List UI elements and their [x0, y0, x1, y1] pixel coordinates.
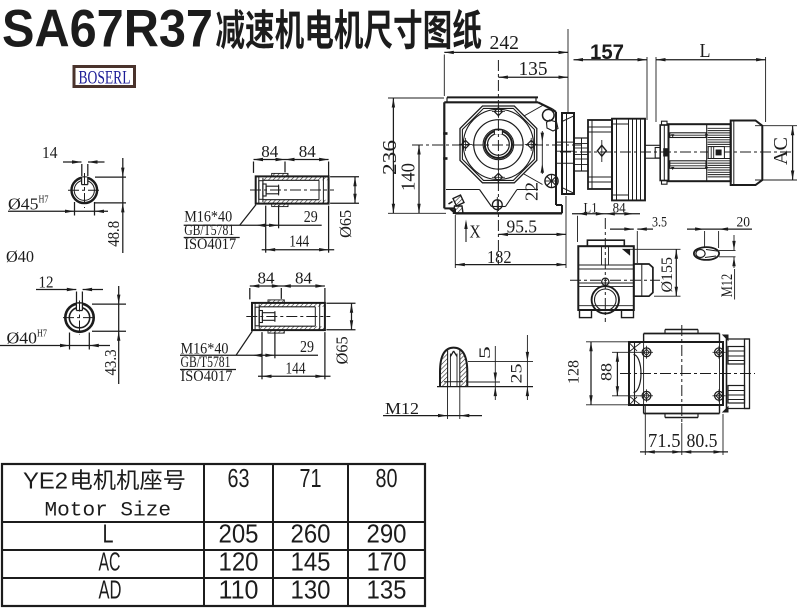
svg-text:140: 140	[398, 163, 420, 191]
svg-text:88: 88	[598, 363, 615, 381]
svg-text:290: 290	[367, 519, 407, 549]
svg-text:144: 144	[286, 358, 306, 377]
svg-text:5: 5	[477, 346, 494, 359]
svg-text:84: 84	[258, 269, 276, 288]
svg-text:22: 22	[522, 182, 542, 201]
svg-text:Ø45: Ø45	[8, 195, 39, 214]
svg-text:80.5: 80.5	[687, 430, 718, 452]
svg-text:43.3: 43.3	[101, 350, 120, 376]
svg-text:14: 14	[42, 143, 58, 162]
svg-text:25: 25	[509, 364, 526, 384]
svg-text:135: 135	[367, 575, 407, 605]
svg-text:Ø40: Ø40	[6, 247, 34, 266]
svg-text:H7: H7	[37, 328, 47, 340]
svg-text:20: 20	[737, 215, 751, 231]
svg-text:3.5: 3.5	[652, 215, 667, 231]
svg-text:95.5: 95.5	[507, 217, 538, 237]
svg-text:144: 144	[289, 232, 309, 251]
svg-text:L: L	[700, 40, 711, 62]
svg-text:80: 80	[376, 463, 398, 493]
svg-text:Ø155: Ø155	[659, 257, 676, 293]
svg-text:170: 170	[367, 547, 407, 577]
svg-text:63: 63	[228, 463, 250, 493]
svg-text:BOSERL: BOSERL	[79, 68, 131, 89]
svg-text:AD: AD	[99, 575, 122, 605]
svg-text:AC: AC	[770, 137, 792, 165]
svg-text:H7: H7	[39, 194, 49, 206]
svg-text:157: 157	[590, 41, 624, 64]
svg-text:71: 71	[300, 463, 322, 493]
svg-text:120: 120	[219, 547, 259, 577]
svg-text:84: 84	[261, 142, 279, 161]
svg-text:29: 29	[300, 337, 314, 356]
svg-text:182: 182	[487, 247, 512, 267]
svg-text:48.8: 48.8	[104, 221, 123, 247]
svg-text:84: 84	[299, 142, 317, 161]
svg-text:SA67R37: SA67R37	[2, 0, 213, 59]
svg-text:Ø65: Ø65	[333, 336, 352, 364]
svg-text:130: 130	[291, 575, 331, 605]
svg-text:L: L	[103, 519, 114, 549]
svg-text:X: X	[470, 222, 481, 242]
svg-text:260: 260	[291, 519, 331, 549]
svg-text:145: 145	[291, 547, 331, 577]
svg-text:AC: AC	[99, 547, 121, 577]
svg-text:71.5: 71.5	[648, 430, 681, 452]
svg-text:128: 128	[566, 360, 583, 384]
svg-text:Ø65: Ø65	[336, 210, 355, 238]
svg-text:242: 242	[490, 32, 520, 54]
svg-text:YE2: YE2	[23, 468, 68, 494]
svg-text:84: 84	[295, 269, 313, 288]
svg-text:29: 29	[304, 207, 318, 226]
svg-text:M12: M12	[719, 274, 736, 298]
svg-text:ISO4017: ISO4017	[181, 368, 233, 385]
svg-text:12: 12	[39, 273, 54, 292]
svg-text:110: 110	[219, 575, 259, 605]
svg-text:ISO4017: ISO4017	[184, 236, 236, 253]
svg-text:Ø40: Ø40	[7, 329, 38, 348]
svg-text:205: 205	[219, 519, 259, 549]
